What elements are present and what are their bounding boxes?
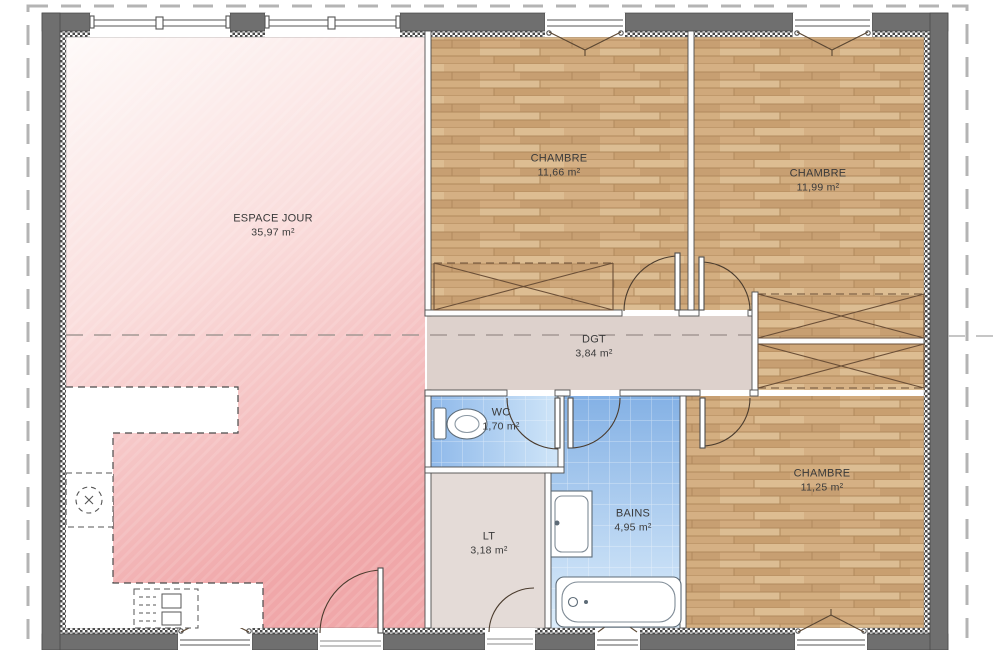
room-name: LT <box>470 531 507 545</box>
bay-window-espace-jour-1 <box>90 13 230 37</box>
room-name: DGT <box>575 334 612 348</box>
room-area: 1,70 m² <box>482 420 519 433</box>
room-label-chambre-2: CHAMBRE 11,99 m² <box>790 168 847 195</box>
room-name: WC <box>482 407 519 421</box>
floor-plan: ESPACE JOUR 35,97 m² CHAMBRE 11,66 m² CH… <box>0 0 1000 650</box>
room-name: CHAMBRE <box>790 168 847 182</box>
room-label-bains: BAINS 4,95 m² <box>614 508 651 535</box>
room-name: ESPACE JOUR <box>233 213 313 227</box>
room-name: BAINS <box>614 508 651 522</box>
room-label-lt: LT 3,18 m² <box>470 531 507 558</box>
room-label-espace-jour: ESPACE JOUR 35,97 m² <box>233 213 313 240</box>
toilet-icon <box>434 408 487 439</box>
room-area: 35,97 m² <box>233 226 313 239</box>
water-heater-icon <box>66 473 113 527</box>
room-name: CHAMBRE <box>531 153 588 167</box>
floor-chambre-3 <box>686 396 924 628</box>
room-label-dgt: DGT 3,84 m² <box>575 334 612 361</box>
sink-vanity-icon <box>551 491 592 557</box>
room-label-wc: WC 1,70 m² <box>482 407 519 434</box>
room-name: CHAMBRE <box>794 468 851 482</box>
room-label-chambre-3: CHAMBRE 11,25 m² <box>794 468 851 495</box>
room-area: 3,84 m² <box>575 347 612 360</box>
room-label-chambre-1: CHAMBRE 11,66 m² <box>531 153 588 180</box>
bay-window-espace-jour-2 <box>265 13 400 37</box>
entrance-opening <box>318 628 383 650</box>
room-area: 11,25 m² <box>794 481 851 494</box>
bathtub-icon <box>556 577 681 627</box>
room-area: 11,66 m² <box>531 166 588 179</box>
room-area: 4,95 m² <box>614 521 651 534</box>
floor-espace-jour-texture <box>66 37 425 628</box>
room-area: 11,99 m² <box>790 181 847 194</box>
room-area: 3,18 m² <box>470 544 507 557</box>
